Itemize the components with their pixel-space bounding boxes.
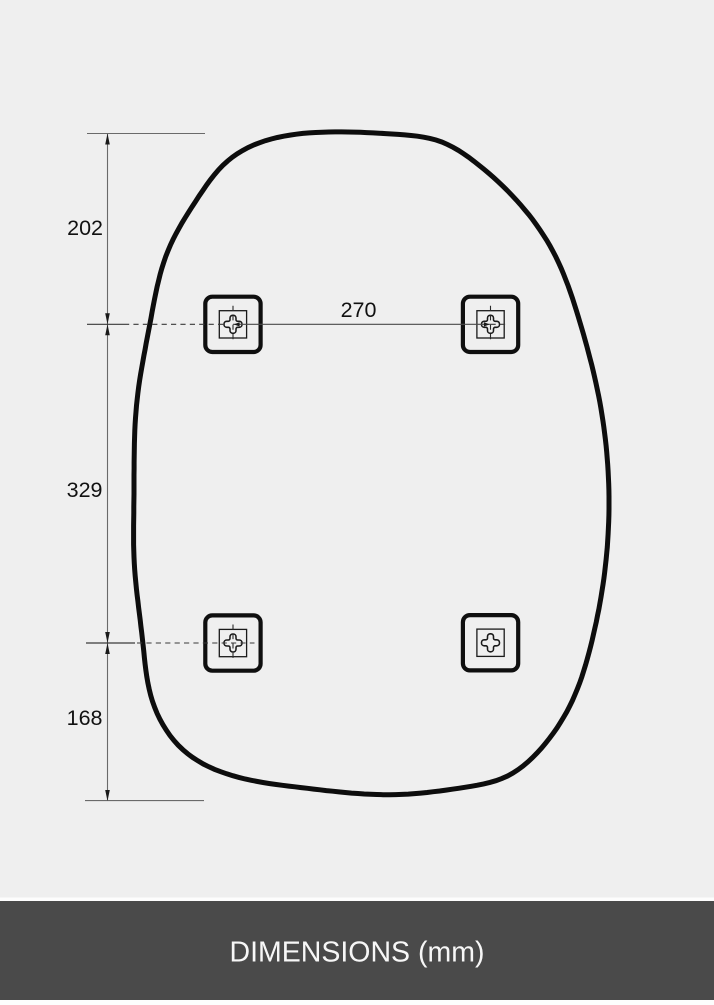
svg-text:329: 329	[67, 478, 103, 502]
svg-text:270: 270	[341, 298, 377, 322]
svg-text:168: 168	[67, 706, 103, 730]
svg-text:202: 202	[67, 216, 103, 240]
